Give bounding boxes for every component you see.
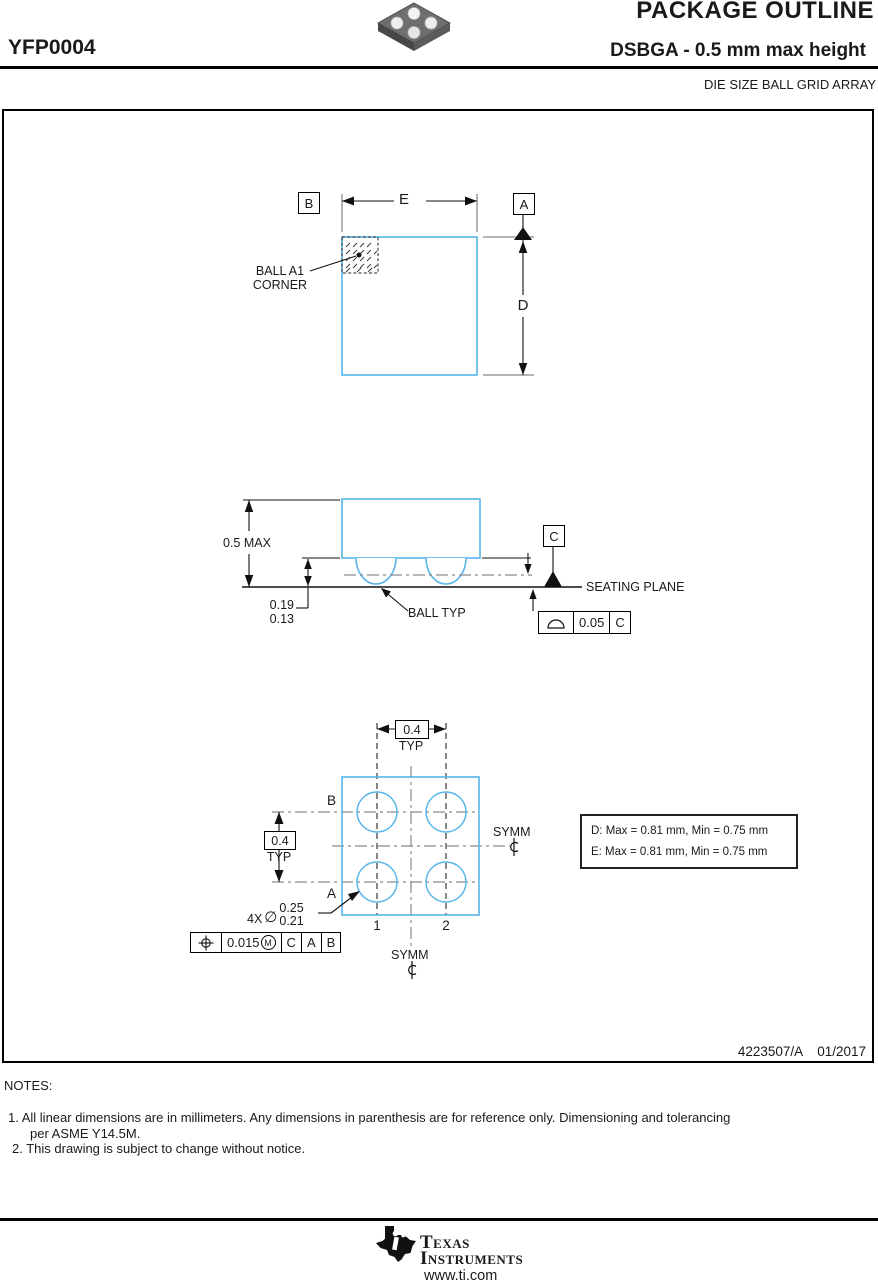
pitch-left-box: 0.4 — [264, 831, 296, 850]
ball-a1-corner-label: BALL A1 CORNER — [249, 264, 311, 292]
ball-height-label: 0.19 0.13 — [262, 598, 294, 626]
package-title: DSBGA - 0.5 mm max height — [610, 40, 866, 62]
symm-right-label: SYMM — [493, 825, 531, 839]
drawing-number: 4223507/A — [738, 1044, 803, 1059]
datum-c-label: C — [549, 529, 558, 544]
col-2-label: 2 — [439, 918, 453, 933]
height-max-label: 0.5 MAX — [221, 536, 273, 550]
note-1: 1. All linear dimensions are in millimet… — [8, 1110, 730, 1125]
pitch-top-typ: TYP — [395, 739, 427, 753]
flatness-fcf: 0.05 C — [538, 611, 631, 634]
position-datum-1: C — [281, 933, 301, 952]
dimension-note-box: D: Max = 0.81 mm, Min = 0.75 mm E: Max =… — [580, 814, 798, 869]
notes-heading: NOTES: — [4, 1078, 52, 1093]
ball-diameter-callout: 4X ∅ 0.25 0.21 — [247, 902, 304, 928]
col-1-label: 1 — [370, 918, 384, 933]
brand-instruments: Instruments — [420, 1249, 523, 1268]
flatness-datum: C — [609, 612, 629, 633]
part-number: YFP0004 — [8, 36, 96, 60]
dim-e-label: E — [392, 192, 416, 209]
pitch-top-box: 0.4 — [395, 720, 429, 739]
footer-rule — [0, 1218, 878, 1221]
datum-a-box: A — [513, 193, 535, 215]
drawing-frame — [2, 109, 874, 1063]
datum-c-box: C — [543, 525, 565, 547]
position-tolerance-icon — [191, 933, 221, 952]
position-datum-2: A — [301, 933, 321, 952]
note-2: 2. This drawing is subject to change wit… — [12, 1141, 305, 1156]
package-subtitle: DIE SIZE BALL GRID ARRAY — [704, 77, 876, 92]
centerline-icon — [403, 961, 419, 979]
datum-b-box: B — [298, 192, 320, 214]
row-a-label: A — [327, 886, 336, 901]
pitch-left-typ: TYP — [262, 850, 296, 864]
ball-typ-label: BALL TYP — [408, 606, 466, 620]
header-rule — [0, 66, 878, 69]
profile-surface-icon — [539, 612, 573, 633]
doc-title: PACKAGE OUTLINE — [636, 0, 874, 25]
package-outline-page: PACKAGE OUTLINE YFP0004 DSBGA - 0.5 mm m… — [0, 0, 878, 1288]
position-fcf: 0.015 M C A B — [190, 932, 341, 953]
position-value: 0.015 M — [221, 933, 281, 952]
note-d: D: Max = 0.81 mm, Min = 0.75 mm — [591, 825, 796, 837]
symm-bottom-label: SYMM — [391, 948, 429, 962]
centerline-icon — [505, 838, 521, 856]
ti-url-link[interactable]: www.ti.com — [424, 1268, 497, 1284]
note-e: E: Max = 0.81 mm, Min = 0.75 mm — [591, 846, 796, 858]
ti-logo-icon — [376, 1226, 418, 1262]
mmc-modifier-icon: M — [261, 935, 276, 950]
flatness-value: 0.05 — [573, 612, 609, 633]
title-block: 4223507/A 01/2017 — [738, 1044, 866, 1059]
drawing-date: 01/2017 — [817, 1044, 866, 1059]
dim-d-label: D — [515, 298, 531, 315]
row-b-label: B — [327, 793, 336, 808]
datum-a-label: A — [520, 197, 529, 212]
datum-b-label: B — [305, 196, 314, 211]
diameter-icon: ∅ — [264, 910, 277, 927]
chip-icon — [374, 1, 454, 51]
seating-plane-label: SEATING PLANE — [586, 580, 684, 594]
position-datum-3: B — [321, 933, 341, 952]
note-1-cont: per ASME Y14.5M. — [30, 1126, 140, 1141]
